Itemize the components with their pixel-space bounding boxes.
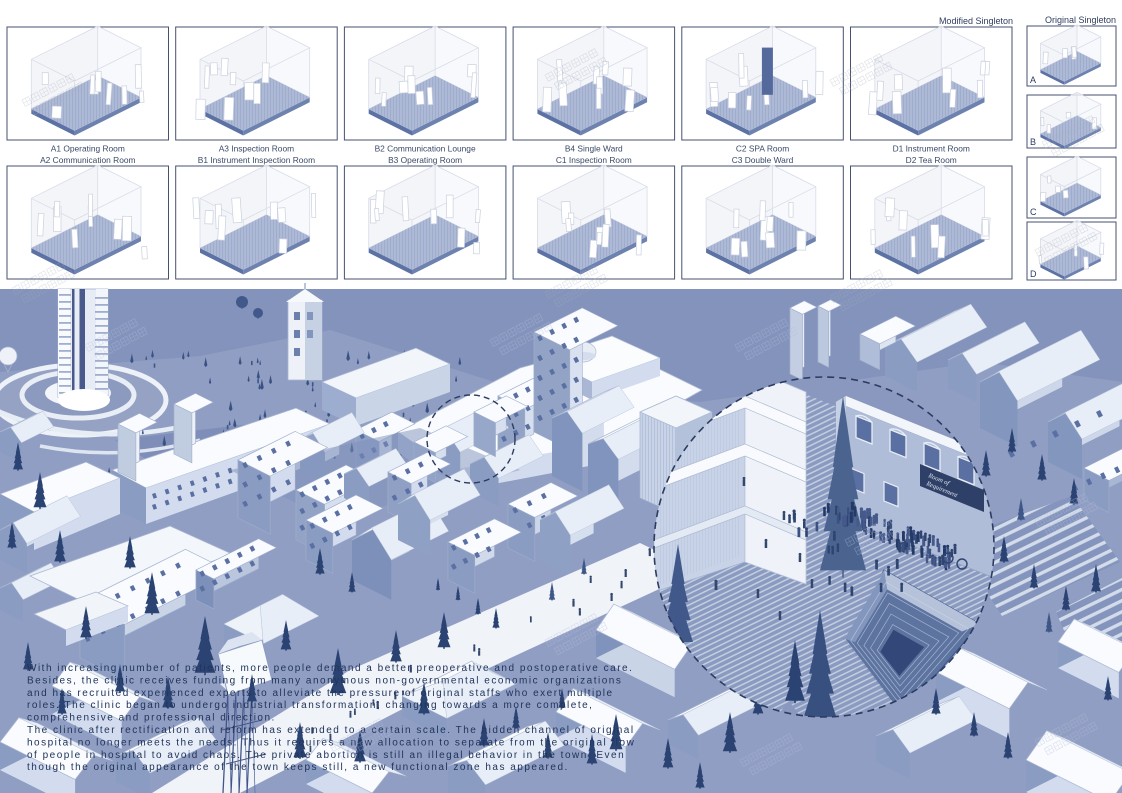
svg-text:D1 Instrument Room: D1 Instrument Room xyxy=(893,144,970,154)
svg-text:B1 Instrument Inspection Room: B1 Instrument Inspection Room xyxy=(198,155,315,165)
svg-text:A2 Communication Room: A2 Communication Room xyxy=(40,155,135,165)
svg-text:Original Singleton: Original Singleton xyxy=(1045,15,1116,25)
svg-text:A3 Inspection Room: A3 Inspection Room xyxy=(219,144,294,154)
svg-text:The clinic after rectification: The clinic after rectification and refor… xyxy=(27,725,635,736)
svg-text:B: B xyxy=(1030,137,1036,147)
svg-text:C3 Double Ward: C3 Double Ward xyxy=(732,155,794,165)
svg-text:C1 Inspection Room: C1 Inspection Room xyxy=(556,155,632,165)
svg-text:C2 SPA Room: C2 SPA Room xyxy=(736,144,789,154)
svg-text:D: D xyxy=(1030,269,1037,279)
svg-text:With increasing number of pati: With increasing number of patients, more… xyxy=(27,663,633,674)
svg-text:comprehensive and professional: comprehensive and professional direction… xyxy=(27,713,276,724)
svg-text:A: A xyxy=(1030,75,1036,85)
svg-text:and has recruited experienced: and has recruited experienced experts to… xyxy=(27,688,614,699)
svg-text:D2 Tea Room: D2 Tea Room xyxy=(906,155,957,165)
svg-text:B4 Single Ward: B4 Single Ward xyxy=(565,144,623,154)
svg-text:of people in hospital to avoid: of people in hospital to avoid chaos. Th… xyxy=(27,750,625,761)
svg-text:B2 Communication Lounge: B2 Communication Lounge xyxy=(375,144,476,154)
svg-text:Modified Singleton: Modified Singleton xyxy=(939,16,1013,26)
svg-text:Besides, the clinic receives f: Besides, the clinic receives funding fro… xyxy=(27,675,622,686)
svg-text:though the original appearance: though the original appearance of the to… xyxy=(27,762,569,773)
svg-text:C: C xyxy=(1030,207,1037,217)
svg-text:roles. The clinic began to und: roles. The clinic began to undergo indus… xyxy=(27,700,593,711)
svg-text:B3 Operating Room: B3 Operating Room xyxy=(388,155,462,165)
svg-text:A1 Operating Room: A1 Operating Room xyxy=(51,144,125,154)
